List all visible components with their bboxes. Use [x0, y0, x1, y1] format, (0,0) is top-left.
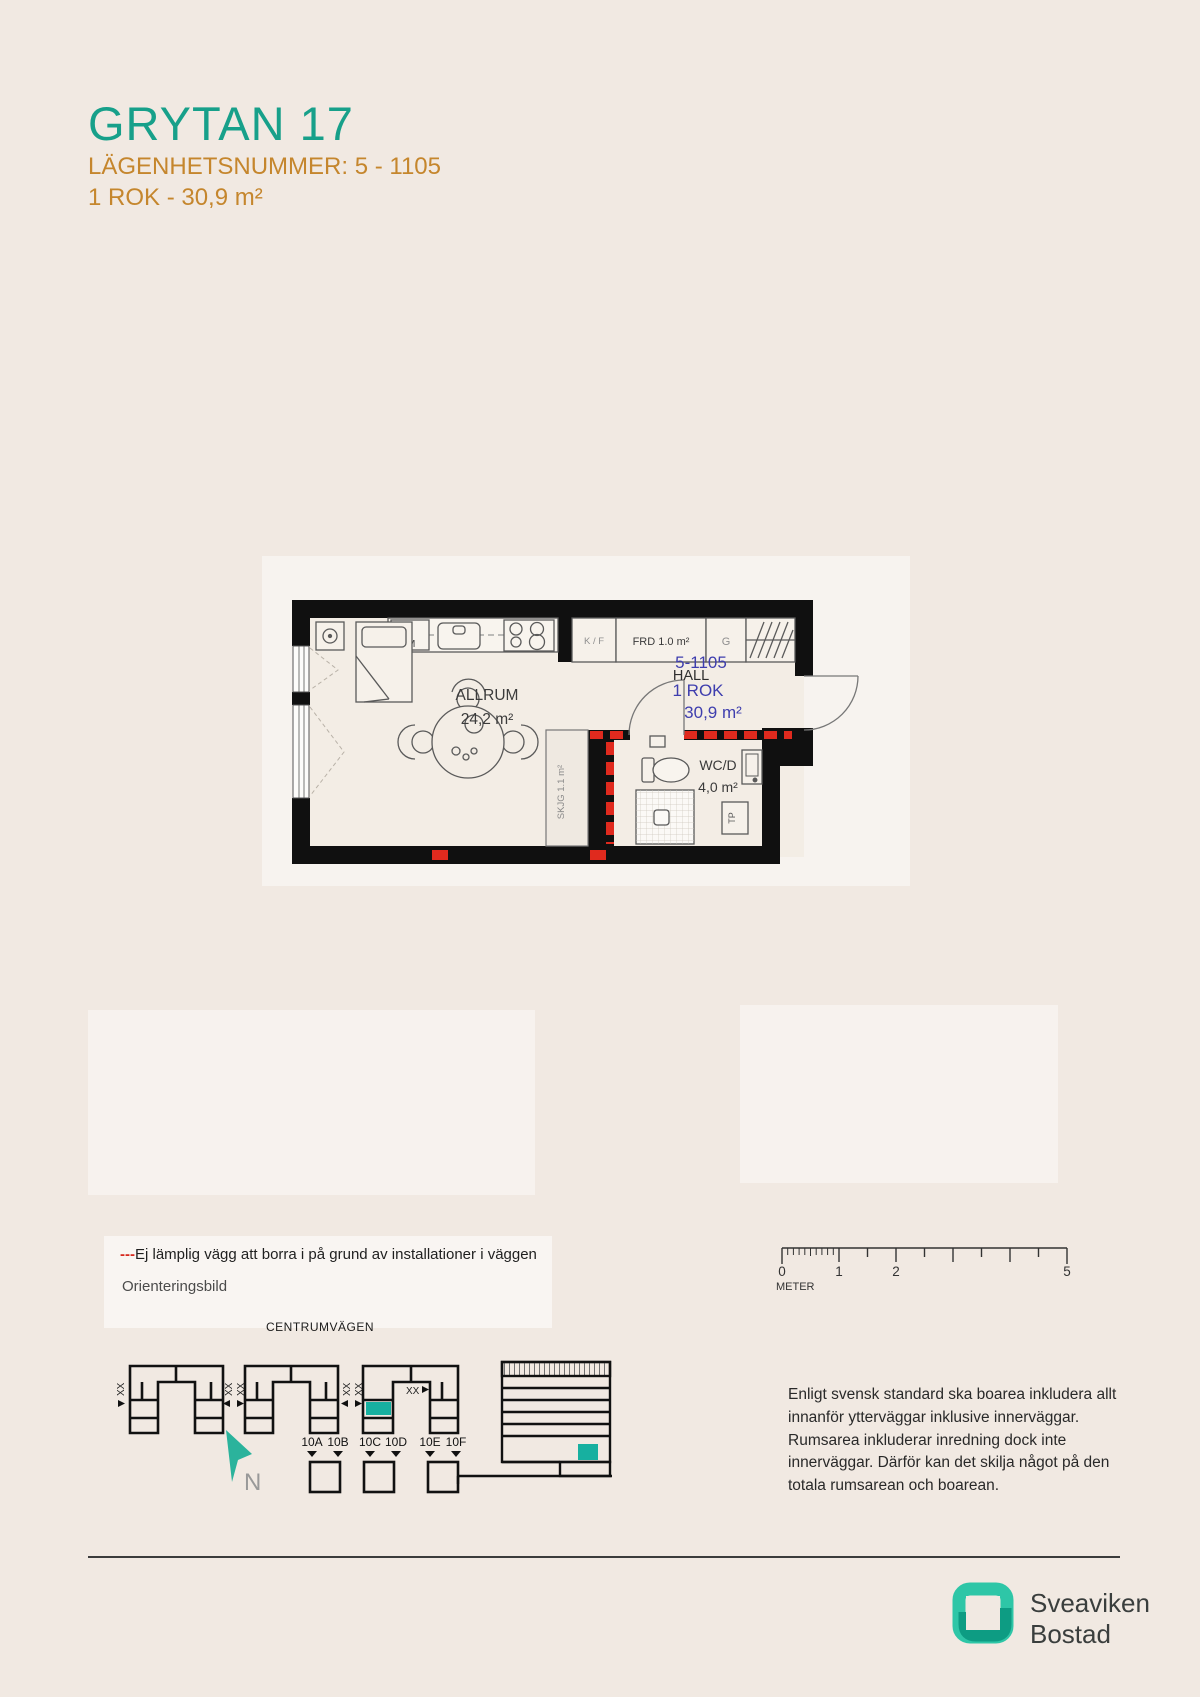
- shower-drain: [654, 810, 669, 825]
- faded-region: [88, 1010, 535, 1195]
- apartment-size: 1 ROK - 30,9 m²: [88, 184, 263, 212]
- wc-area: 4,0 m²: [698, 779, 738, 795]
- red-dash-icon: ---: [120, 1246, 135, 1263]
- washbasin: [742, 750, 762, 784]
- brand-name: Sveaviken Bostad: [1030, 1588, 1150, 1649]
- xx-marker: XX: [354, 1382, 365, 1396]
- tp-label: TP: [727, 812, 737, 824]
- entrance-arrows: [307, 1451, 461, 1457]
- apartment-number: LÄGENHETSNUMMER: 5 - 1105: [88, 153, 441, 181]
- highlighted-apartment: [366, 1402, 391, 1415]
- floorplan-page: GRYTAN 17 LÄGENHETSNUMMER: 5 - 1105 1 RO…: [0, 0, 1200, 1697]
- xx-marker: XX: [236, 1382, 247, 1396]
- unit-type-label: 1 ROK: [672, 681, 724, 700]
- arrow-right-icon: [237, 1400, 244, 1407]
- sliding-wardrobe: [546, 730, 588, 846]
- unit-number-label: 5-1105: [675, 653, 727, 672]
- street-label: CENTRUMVÄGEN: [266, 1320, 374, 1334]
- no-drill-mark: [432, 850, 448, 860]
- room-label: ALLRUM: [456, 687, 519, 704]
- toilet-tank: [642, 758, 654, 782]
- building-block: [245, 1366, 338, 1433]
- no-drill-mark: [590, 850, 606, 860]
- xx-marker: XX: [342, 1382, 353, 1396]
- scale-unit: METER: [776, 1281, 815, 1293]
- scale-5: 5: [1063, 1264, 1071, 1279]
- north-label: N: [244, 1469, 261, 1496]
- arrow-right-icon: [355, 1400, 362, 1407]
- no-drill-legend: ---Ej lämplig vägg att borra i på grund …: [120, 1246, 537, 1263]
- floorplan-drawing: DM K / F FRD 1.0 m² G: [292, 600, 892, 872]
- scale-0: 0: [778, 1264, 786, 1279]
- room-area: 24,2 m²: [461, 711, 514, 728]
- scale-1: 1: [835, 1264, 843, 1279]
- boarea-description: Enligt svensk standard ska boarea inklud…: [788, 1384, 1140, 1498]
- pillow: [362, 627, 406, 647]
- entrance-label: 10D: [385, 1435, 407, 1449]
- arrow-left-icon: [341, 1400, 348, 1407]
- page-title: GRYTAN 17: [88, 96, 354, 151]
- toilet: [653, 758, 689, 782]
- footer-divider: [88, 1556, 1120, 1558]
- sveaviken-logo-icon: [950, 1580, 1016, 1648]
- building-block-highlighted: [363, 1366, 458, 1433]
- entrance-label: 10C: [359, 1435, 381, 1449]
- arrow-right-icon: [118, 1400, 125, 1407]
- entry-door: [804, 676, 858, 730]
- highlighted-unit-elevation: [578, 1444, 598, 1460]
- brand-line1: Sveaviken: [1030, 1588, 1150, 1619]
- entrance-squares: [310, 1462, 458, 1492]
- kf-label: K / F: [584, 636, 604, 647]
- arrow-right-icon: [422, 1386, 429, 1393]
- entrance-label: 10A: [301, 1435, 322, 1449]
- wc-label: WC/D: [699, 757, 736, 773]
- faded-region: [740, 1005, 1058, 1183]
- entrance-label: 10F: [446, 1435, 467, 1449]
- scale-2: 2: [892, 1264, 900, 1279]
- unit-area-label: 30,9 m²: [684, 703, 742, 722]
- entrance-label: 10E: [419, 1435, 440, 1449]
- xx-marker: XX: [406, 1386, 420, 1397]
- frd-label: FRD 1.0 m²: [633, 636, 690, 648]
- building-elevation: [458, 1362, 612, 1484]
- building-block: [130, 1366, 223, 1433]
- skjg-label: SKJG 1.1 m²: [556, 765, 567, 819]
- brand-line2: Bostad: [1030, 1619, 1150, 1650]
- xx-marker: XX: [116, 1382, 127, 1396]
- g-label: G: [722, 636, 731, 648]
- xx-marker: XX: [224, 1382, 235, 1396]
- orientation-siteplan: XX XX XX XX XX XX 10A 10B 10C 10D 10E 10…: [112, 1338, 692, 1508]
- orientation-title: Orienteringsbild: [122, 1278, 227, 1295]
- scale-bar: 0 1 2 5 METER: [770, 1240, 1090, 1295]
- entrance-label: 10B: [327, 1435, 348, 1449]
- no-drill-text: Ej lämplig vägg att borra i på grund av …: [135, 1246, 537, 1263]
